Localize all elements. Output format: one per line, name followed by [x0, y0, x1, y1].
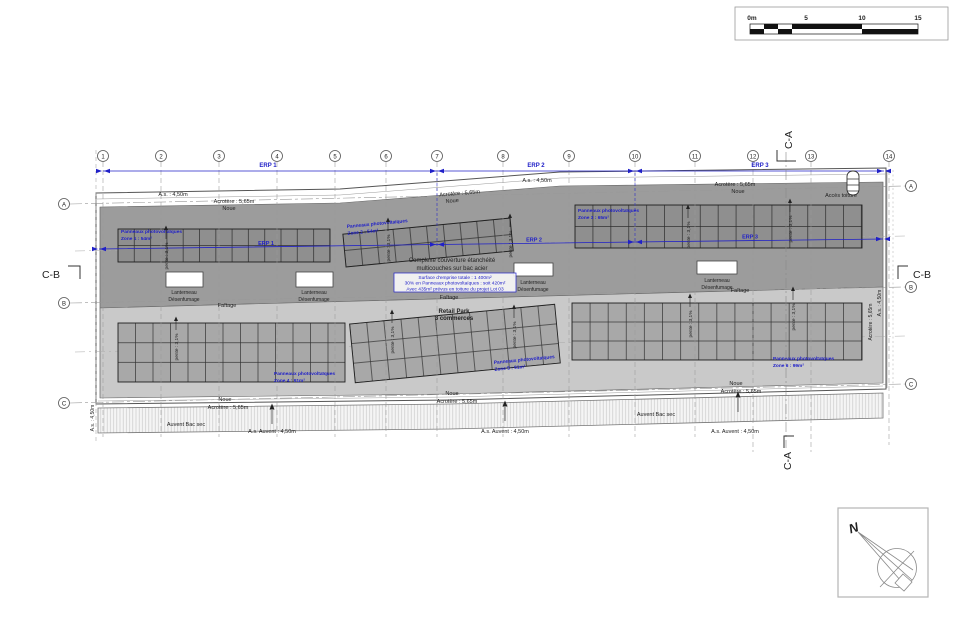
roof-plan-sheet: Lanterneau Désenfumage Lanterneau Désenf…: [0, 0, 960, 620]
pente-label: pente : 3,1%: [791, 303, 797, 331]
row-a-right: A: [909, 184, 913, 190]
zone3-area: Zone 3 : 65m²: [578, 215, 609, 221]
svg-text:10: 10: [632, 154, 639, 160]
pv-zone-6: [572, 303, 862, 360]
faitage-mid: Faîtage: [440, 295, 459, 301]
lanterneau-2-label2: Désenfumage: [298, 297, 329, 303]
pente-label: pente : 3,1%: [174, 333, 180, 361]
row-b-right: B: [909, 285, 913, 291]
section-cb-right-bracket: [898, 266, 908, 279]
lanterneau-1-label: Lanterneau: [171, 290, 197, 296]
svg-text:12: 12: [750, 154, 757, 160]
faitage-right: Faîtage: [731, 288, 750, 294]
as-auvent-3: A.s. Auvent : 4,50m: [711, 429, 759, 435]
section-ca-bottom-bracket: [784, 436, 794, 448]
erp2-top-label: ERP 2: [527, 163, 545, 169]
pente-label: pente : 3,1%: [386, 234, 392, 262]
roof-access-ladder: [847, 171, 859, 195]
noue-top-right: Noue: [731, 189, 744, 195]
auvent-label-left: Auvent Bac sec: [167, 422, 205, 428]
erp2-roof-label: ERP 2: [526, 238, 542, 244]
noue-top-mid: Noue: [445, 198, 459, 205]
lanterneau-4-label: Lanterneau: [704, 278, 730, 284]
lanterneau-3: [514, 263, 553, 276]
erp3-roof-label: ERP 3: [742, 235, 758, 241]
faitage-left: Faîtage: [218, 303, 237, 309]
section-ca-bottom-label: C-A: [782, 452, 794, 470]
lanterneau-3-label2: Désenfumage: [517, 287, 548, 293]
zone1-title: Panneaux photovoltaïques: [121, 229, 182, 235]
zone6-title: Panneaux photovoltaïques: [773, 356, 834, 362]
scale-tick-15: 15: [914, 15, 922, 22]
scale-tick-5: 5: [804, 15, 808, 22]
section-cb-right-label: C-B: [913, 269, 931, 281]
acrotere-bottom-right: Acrotère : 5,65m: [721, 389, 762, 395]
pente-label: pente : 3,1%: [686, 221, 692, 249]
section-cb-left-label: C-B: [42, 269, 60, 281]
acrotere-top-left: Acrotère : 5,65m: [214, 199, 255, 205]
noue-bottom-left: Noue: [218, 397, 231, 403]
lanterneau-3-label: Lanterneau: [520, 280, 546, 286]
row-a-left: A: [62, 202, 66, 208]
zone3-title: Panneaux photovoltaïques: [578, 208, 639, 214]
note-line2: multicouches sur bac acier: [416, 266, 487, 272]
acrotere-top-right: Acrotère : 5,65m: [715, 182, 756, 188]
pente-label: pente : 3,1%: [508, 230, 514, 258]
pente-label: pente : 3,1%: [688, 310, 694, 338]
zone4-title: Panneaux photovoltaïques: [274, 371, 335, 377]
svg-text:14: 14: [886, 154, 893, 160]
as-top-mid: A.s. : 4,50m: [522, 178, 552, 184]
noue-bottom-right: Noue: [729, 381, 742, 387]
pente-label: pente : 3,1%: [390, 326, 396, 354]
surface-line3: Avec 435m² prévus en toiture du projet L…: [406, 286, 504, 292]
north-arrow: N: [838, 508, 928, 597]
acrotere-right-vertical: Acrotère : 5,65m: [868, 304, 874, 341]
row-c-right: C: [909, 382, 914, 388]
as-auvent-2: A.s. Auvent : 4,50m: [481, 429, 529, 435]
lanterneau-4-label2: Désenfumage: [701, 285, 732, 291]
retail-park-label: Retail Park: [438, 309, 470, 315]
row-c-left: C: [62, 401, 67, 407]
lanterneau-4: [697, 261, 737, 274]
scale-tick-0: 0m: [747, 15, 757, 22]
surface-line1: Surface d'emprise totale : 1 400m²: [418, 275, 492, 281]
lanterneau-2-label: Lanterneau: [301, 290, 327, 296]
section-ca-top-bracket: [777, 150, 796, 161]
as-top-left: A.s. : 4,50m: [158, 192, 188, 198]
scale-bar: 0m 5 10 15: [735, 7, 948, 40]
retail-park-sub: 3 commerces: [435, 316, 474, 322]
svg-text:13: 13: [808, 154, 815, 160]
as-left-vertical: A.s. : 4,50m: [90, 405, 96, 432]
as-auvent-1: A.s. Auvent : 4,50m: [248, 429, 296, 435]
noue-top-left: Noue: [222, 206, 235, 212]
surface-line2: 30% en Panneaux photovoltaïques : soit 4…: [405, 281, 506, 287]
scale-tick-10: 10: [858, 15, 866, 22]
pente-label: pente : 3,1%: [512, 321, 518, 349]
note-line1: Complexe couverture étanchéité: [409, 258, 496, 264]
row-b-left: B: [62, 301, 66, 307]
zone4-area: Zone 4 : 91m²: [274, 378, 305, 384]
section-cb-left-bracket: [68, 266, 80, 279]
svg-text:11: 11: [692, 154, 699, 160]
erp1-roof-label: ERP 1: [258, 241, 274, 247]
lanterneau-1: [166, 272, 203, 287]
acrotere-bottom-left: Acrotère : 5,65m: [208, 405, 249, 411]
erp1-top-label: ERP 1: [259, 163, 277, 169]
auvent-label-right: Auvent Bac sec: [637, 412, 675, 418]
zone1-area: Zone 1 : 54m²: [121, 236, 152, 242]
acrotere-bottom-mid: Acrotère : 5,65m: [437, 399, 478, 405]
lanterneau-2: [296, 272, 333, 287]
zone6-area: Zone 6 : 99m²: [773, 363, 804, 369]
pente-label: pente : 3,1%: [164, 242, 170, 270]
pente-label: pente : 3,1%: [788, 215, 794, 243]
section-ca-top-label: C-A: [783, 131, 795, 149]
noue-bottom-mid: Noue: [445, 391, 458, 397]
as-right-vertical: A.s. : 4,50m: [877, 290, 883, 317]
erp3-top-label: ERP 3: [751, 163, 769, 169]
building-roof: [96, 150, 893, 442]
lanterneau-1-label2: Désenfumage: [168, 297, 199, 303]
